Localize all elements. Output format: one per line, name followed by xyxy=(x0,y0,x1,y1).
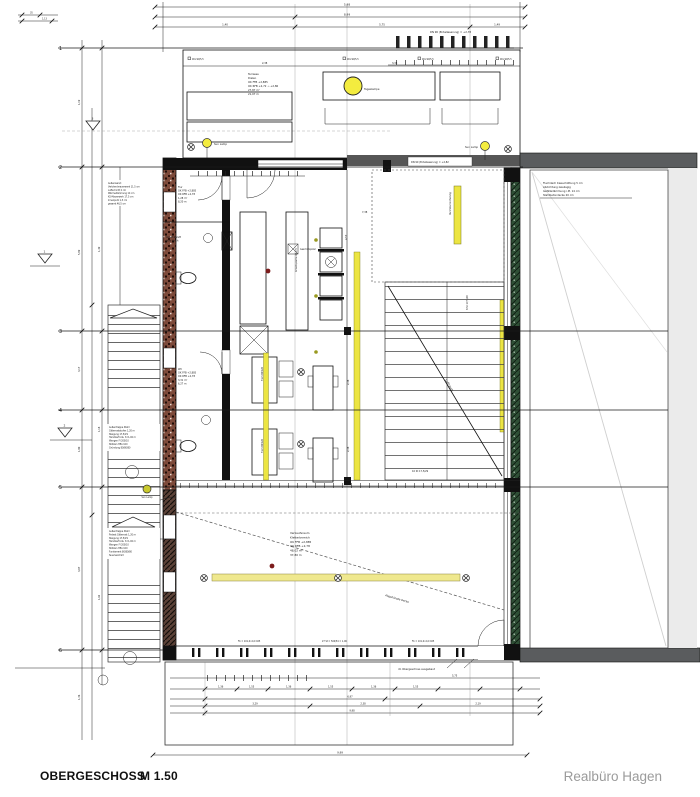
svg-text:5,99: 5,99 xyxy=(78,249,81,255)
svg-text:OK FFB +2,885: OK FFB +2,885 xyxy=(178,190,197,193)
flur-door-gap xyxy=(222,176,230,200)
band-note-3: Fb = 101,0×0,0 025 xyxy=(412,640,435,643)
svg-text:Flur: Flur xyxy=(178,186,183,189)
axis-row-1: 1 xyxy=(59,46,62,52)
floor-plan-drawing: DN 90 (Entwässerung) = +2,78 Tageslampe … xyxy=(0,0,700,797)
sun-lamp-label-2: Sun Lamp xyxy=(465,145,478,149)
svg-text:Kletterbereich: Kletterbereich xyxy=(290,535,310,539)
socket-dot-3 xyxy=(314,350,318,354)
drain-label-bottom: DN 90 (Entwässerung) = +2,82 xyxy=(411,161,449,164)
axis-row-3: 3 xyxy=(59,329,62,335)
svg-text:21,07 m: 21,07 m xyxy=(248,92,259,96)
svg-text:über Dach: über Dach xyxy=(166,240,179,243)
annex-wall-bottom xyxy=(520,648,700,662)
svg-text:90×90/5,5: 90×90/5,5 xyxy=(422,58,434,61)
svg-text:1,40: 1,40 xyxy=(222,23,228,27)
svg-text:3: 3 xyxy=(92,117,94,121)
annex-wall-top xyxy=(520,153,697,168)
band-note-2: 27 St = 500/54 = 1,06 xyxy=(322,640,347,643)
svg-text:5,75: 5,75 xyxy=(379,23,385,27)
terrace-dim-2: 3,38 xyxy=(392,62,398,65)
svg-text:1,18: 1,18 xyxy=(98,426,101,432)
svg-text:Stahlbetondecke 20 cm: Stahlbetondecke 20 cm xyxy=(543,193,574,197)
svg-text:5,98: 5,98 xyxy=(344,3,350,7)
svg-text:2,38: 2,38 xyxy=(360,703,366,706)
svg-text:1,49: 1,49 xyxy=(494,23,500,27)
svg-text:3,31 m²: 3,31 m² xyxy=(178,379,187,382)
svg-text:2: 2 xyxy=(64,424,66,428)
svg-text:90×90/5,5: 90×90/5,5 xyxy=(347,58,359,61)
sun-lamp-icon-2 xyxy=(481,142,490,151)
dishwasher-label: Geschirrspüler xyxy=(300,248,316,251)
guard-label: Durchsturzsicherung xyxy=(449,192,452,215)
wc-strip-wall xyxy=(222,170,230,480)
yellow-beam-horizontal-2 xyxy=(340,574,460,581)
svg-text:90×90/5,5: 90×90/5,5 xyxy=(500,58,512,61)
svg-text:OK RFB +2,78: OK RFB +2,78 xyxy=(290,544,310,548)
svg-text:1,55: 1,55 xyxy=(249,686,255,689)
red-marker-dot-2 xyxy=(270,564,275,569)
sun-lamp-label-1: Sun Lamp xyxy=(214,142,227,146)
inner-dim-3: 2,38 xyxy=(347,379,350,385)
ext-stair-spec-upper: Außentreppe Stahl Gitterroststufen 1,20 … xyxy=(107,424,160,451)
svg-text:Gründung 80/80/80: Gründung 80/80/80 xyxy=(109,446,131,449)
axis-row-2: 2 xyxy=(59,165,62,171)
stair-flight-upper-label: 8 St 17,5/29 xyxy=(466,295,469,310)
sun-lamp-label-3: Sun Lamp xyxy=(142,496,154,499)
svg-text:feuerverzinkt: feuerverzinkt xyxy=(109,554,124,557)
svg-text:1,36: 1,36 xyxy=(218,686,224,689)
svg-text:27,87 m²: 27,87 m² xyxy=(248,88,260,92)
right-wall-pier-1 xyxy=(504,168,520,182)
svg-text:1,28 m²: 1,28 m² xyxy=(178,197,187,200)
wc-door-gap xyxy=(222,350,230,374)
svg-text:1,19: 1,19 xyxy=(78,99,81,105)
converted-note: im Obergeschoss ausgebaut xyxy=(398,667,435,671)
svg-text:3,07: 3,07 xyxy=(78,566,81,572)
floor-plan-page: DN 90 (Entwässerung) = +2,78 Tageslampe … xyxy=(0,0,700,797)
yellow-beam-2 xyxy=(264,353,269,480)
scale-label: M 1.50 xyxy=(140,769,178,783)
right-wall-pier-3 xyxy=(504,478,520,492)
skylight-label: Tageslampe xyxy=(364,87,380,91)
svg-text:48,02 m²: 48,02 m² xyxy=(290,549,303,553)
svg-text:OK RFB +2,78: OK RFB +2,78 xyxy=(178,193,195,196)
terrace-tick-row xyxy=(388,60,514,65)
svg-text:3,29: 3,29 xyxy=(252,703,258,706)
svg-text:Abdichtung zweilagig: Abdichtung zweilagig xyxy=(543,185,571,189)
socket-dot-1 xyxy=(314,238,318,242)
ext-stair-treads-3 xyxy=(108,585,160,660)
svg-text:OK FFB +2,885: OK FFB +2,885 xyxy=(290,540,312,544)
svg-text:gesamt 46,5 cm: gesamt 46,5 cm xyxy=(108,202,126,205)
bottom-door-gap xyxy=(478,646,504,660)
svg-text:Flachdach Kiesschüttung 5 cm: Flachdach Kiesschüttung 5 cm xyxy=(543,181,583,185)
yellow-beam-1 xyxy=(354,252,360,480)
socket-dot-2 xyxy=(314,294,318,298)
svg-text:1,55: 1,55 xyxy=(413,686,419,689)
terrace-batten-row xyxy=(396,36,514,48)
left-wall-door-gap xyxy=(164,515,176,539)
sun-lamp-icon-1 xyxy=(203,139,212,148)
svg-text:OK RFB +2,72 → +2,86: OK RFB +2,72 → +2,86 xyxy=(248,84,279,88)
svg-text:Verkaufsraum: Verkaufsraum xyxy=(290,531,310,535)
right-wall-pier-2 xyxy=(504,326,520,340)
right-wall-pier-4 xyxy=(504,644,520,660)
right-wall-green xyxy=(511,168,520,660)
svg-text:9,98: 9,98 xyxy=(349,710,355,713)
band-note-1: Fb = 101,0×0,0 025 xyxy=(238,640,261,643)
svg-text:1,49: 1,49 xyxy=(98,246,101,252)
svg-text:1,55: 1,55 xyxy=(328,686,334,689)
svg-text:1: 1 xyxy=(44,250,46,254)
svg-text:3,17: 3,17 xyxy=(78,366,81,372)
axis-row-6: 6 xyxy=(59,648,62,654)
drain-label-top: DN 90 (Entwässerung) = +2,78 xyxy=(430,30,471,34)
ext-stair-treads-1 xyxy=(108,308,160,388)
skylight-lamp-icon xyxy=(344,77,362,95)
svg-text:Gefälledämmung i.M. 14 cm: Gefälledämmung i.M. 14 cm xyxy=(543,189,580,193)
yellow-beam-horizontal-1 xyxy=(212,574,336,581)
svg-text:1,80: 1,80 xyxy=(78,446,81,452)
stair-flight-lower-label: 10 St 17,5/29 xyxy=(412,470,429,473)
svg-text:9,99: 9,99 xyxy=(337,751,343,755)
floor-title: OBERGESCHOSS xyxy=(40,769,145,783)
terrace-dim-1: 2,38 xyxy=(262,62,268,65)
svg-text:8,20 m: 8,20 m xyxy=(178,200,187,203)
sun-lamp-icon-3 xyxy=(143,485,151,493)
svg-text:1,13: 1,13 xyxy=(42,18,47,21)
red-marker-dot-1 xyxy=(266,269,271,274)
svg-text:OK FFB +2,885: OK FFB +2,885 xyxy=(178,372,197,375)
svg-text:6,27 m: 6,27 m xyxy=(178,382,187,385)
annex-right-strip xyxy=(668,168,697,648)
svg-text:1,36: 1,36 xyxy=(78,694,81,700)
firm-name: Realbüro Hagen xyxy=(564,769,662,784)
svg-text:OK FFB +2,885: OK FFB +2,885 xyxy=(248,80,268,84)
svg-text:1,36: 1,36 xyxy=(371,686,377,689)
annex-roof: Flachdach Kiesschüttung 5 cm Abdichtung … xyxy=(520,153,700,662)
svg-text:90×90/5,5: 90×90/5,5 xyxy=(192,58,204,61)
axis-row-5: 5 xyxy=(59,485,62,491)
svg-text:8,99: 8,99 xyxy=(344,13,350,17)
inner-dim-2: 4,57 xyxy=(345,234,348,240)
wall-spec-block: Außenwand: Verblendmauerwerk 11,5 cm Luf… xyxy=(106,180,160,206)
stair-yellow-guard xyxy=(454,186,461,244)
svg-text:Terrasse: Terrasse xyxy=(248,72,259,76)
svg-text:2,19: 2,19 xyxy=(475,703,481,706)
svg-text:WC: WC xyxy=(178,368,182,371)
ext-stair-spec-lower: Außentreppe Stahl Podest Gitterrost 1,20… xyxy=(107,528,160,559)
inner-dim-1: 7,38 xyxy=(362,211,368,214)
svg-text:1,36: 1,36 xyxy=(286,686,292,689)
svg-text:OK RFB +2,78: OK RFB +2,78 xyxy=(178,375,195,378)
bottom-window-band xyxy=(178,648,502,657)
inner-dim-4: 2,38 xyxy=(347,446,350,452)
bottom-wall-corner-left xyxy=(163,646,176,660)
axis-row-4: 4 xyxy=(59,408,62,414)
svg-text:Abluft/Zuluft: Abluft/Zuluft xyxy=(166,236,181,239)
svg-text:1,62: 1,62 xyxy=(98,594,101,600)
svg-text:6,97: 6,97 xyxy=(347,696,353,699)
svg-text:5,75: 5,75 xyxy=(452,675,458,678)
svg-text:Dielen: Dielen xyxy=(248,76,257,80)
svg-text:37,80 m: 37,80 m xyxy=(290,553,302,557)
